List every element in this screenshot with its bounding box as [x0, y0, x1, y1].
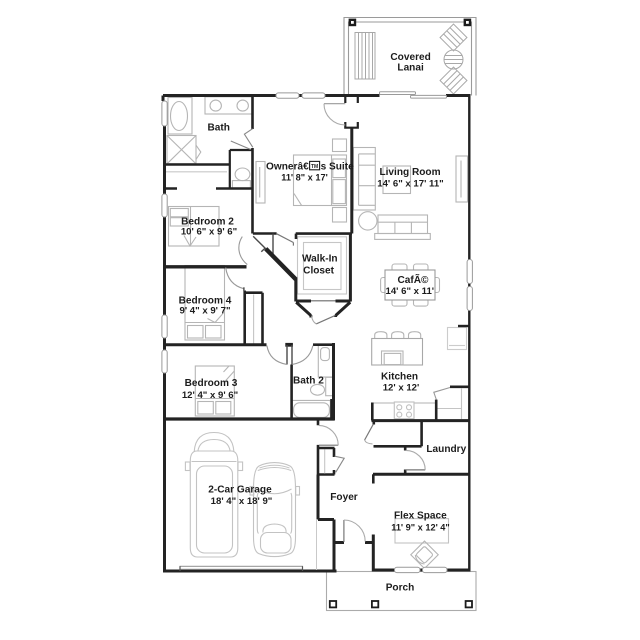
- svg-text:Bath 2: Bath 2: [293, 376, 324, 387]
- svg-text:Bedroom 3: Bedroom 3: [185, 378, 238, 389]
- svg-text:Covered: Covered: [390, 52, 430, 63]
- svg-text:11' 9" x 12' 4": 11' 9" x 12' 4": [391, 522, 450, 532]
- svg-text:Closet: Closet: [303, 266, 334, 277]
- svg-text:Lanai: Lanai: [397, 63, 424, 74]
- svg-text:12' 4" x 9' 6": 12' 4" x 9' 6": [182, 390, 238, 401]
- svg-text:Porch: Porch: [386, 583, 415, 594]
- svg-text:Kitchen: Kitchen: [381, 371, 418, 382]
- svg-text:10' 6" x 9' 6": 10' 6" x 9' 6": [181, 227, 237, 238]
- svg-text:9' 4" x 9' 7": 9' 4" x 9' 7": [180, 306, 231, 317]
- svg-text:2-Car Garage: 2-Car Garage: [208, 485, 272, 496]
- svg-text:Walk-In: Walk-In: [302, 254, 338, 265]
- svg-text:Flex Space: Flex Space: [394, 511, 447, 522]
- svg-text:Laundry: Laundry: [426, 444, 466, 455]
- svg-text:14' 6" x 17' 11": 14' 6" x 17' 11": [377, 179, 443, 190]
- svg-text:Living Room: Living Room: [379, 167, 440, 178]
- svg-text:18' 4" x 18' 9": 18' 4" x 18' 9": [211, 496, 273, 507]
- svg-text:TM: TM: [311, 164, 318, 170]
- svg-text:CafÃ©: CafÃ©: [398, 273, 430, 286]
- svg-text:Ownerâ€: Ownerâ€: [266, 161, 309, 172]
- svg-text:Foyer: Foyer: [330, 492, 358, 503]
- svg-text:12' x 12': 12' x 12': [383, 383, 420, 394]
- svg-text:Bath: Bath: [207, 123, 229, 134]
- svg-text:11' 8" x 17': 11' 8" x 17': [281, 172, 328, 182]
- svg-text:14' 6" x 11': 14' 6" x 11': [386, 286, 435, 297]
- svg-text:s Suite: s Suite: [321, 161, 354, 172]
